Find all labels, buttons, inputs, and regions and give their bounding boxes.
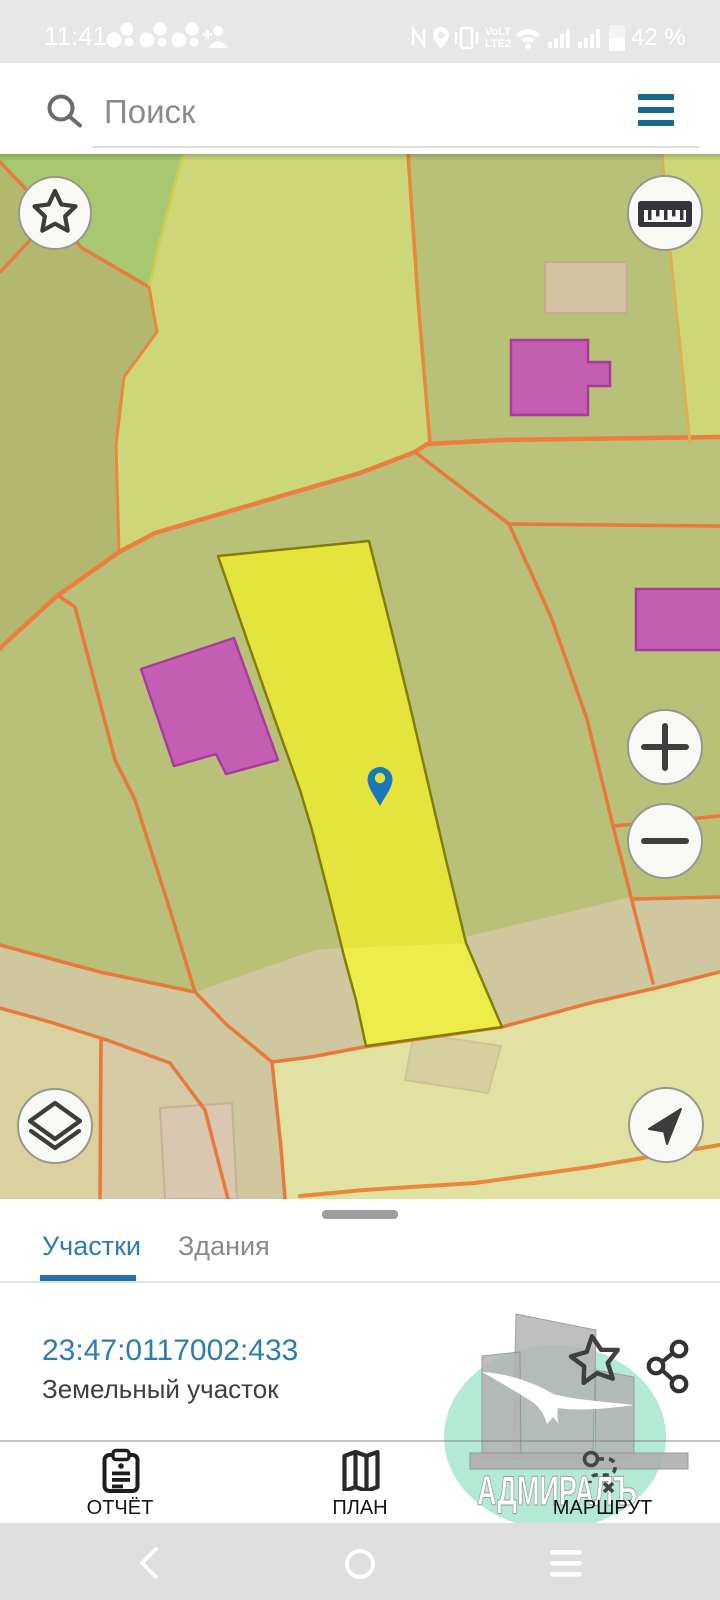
svg-text:11:41: 11:41 — [44, 21, 107, 51]
svg-text:42 %: 42 % — [631, 24, 686, 51]
svg-text:Поиск: Поиск — [104, 93, 196, 130]
svg-text:LTE2: LTE2 — [485, 38, 511, 50]
svg-text:VoLT: VoLT — [485, 26, 511, 38]
